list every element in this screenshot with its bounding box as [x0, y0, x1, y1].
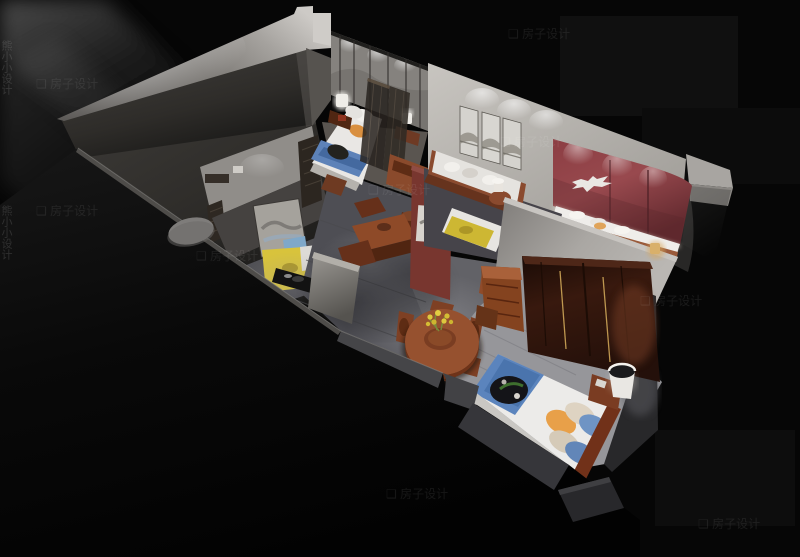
- svg-text:❑ 房子设计: ❑ 房子设计: [36, 76, 98, 91]
- svg-text:❑ 房子设计: ❑ 房子设计: [196, 248, 258, 263]
- svg-text:❑ 房子设计: ❑ 房子设计: [368, 182, 430, 197]
- svg-text:❑ 房子设计: ❑ 房子设计: [386, 486, 448, 501]
- svg-text:熊小小设计: 熊小小设计: [0, 39, 13, 96]
- svg-text:❑ 房子设计: ❑ 房子设计: [500, 134, 562, 149]
- svg-text:❑ 房子设计: ❑ 房子设计: [698, 516, 760, 531]
- svg-text:❑ 房子设计: ❑ 房子设计: [640, 293, 702, 308]
- svg-text:❑ 房子设计: ❑ 房子设计: [508, 26, 570, 41]
- svg-text:❑ 房子设计: ❑ 房子设计: [36, 203, 98, 218]
- svg-text:熊小小设计: 熊小小设计: [0, 204, 13, 261]
